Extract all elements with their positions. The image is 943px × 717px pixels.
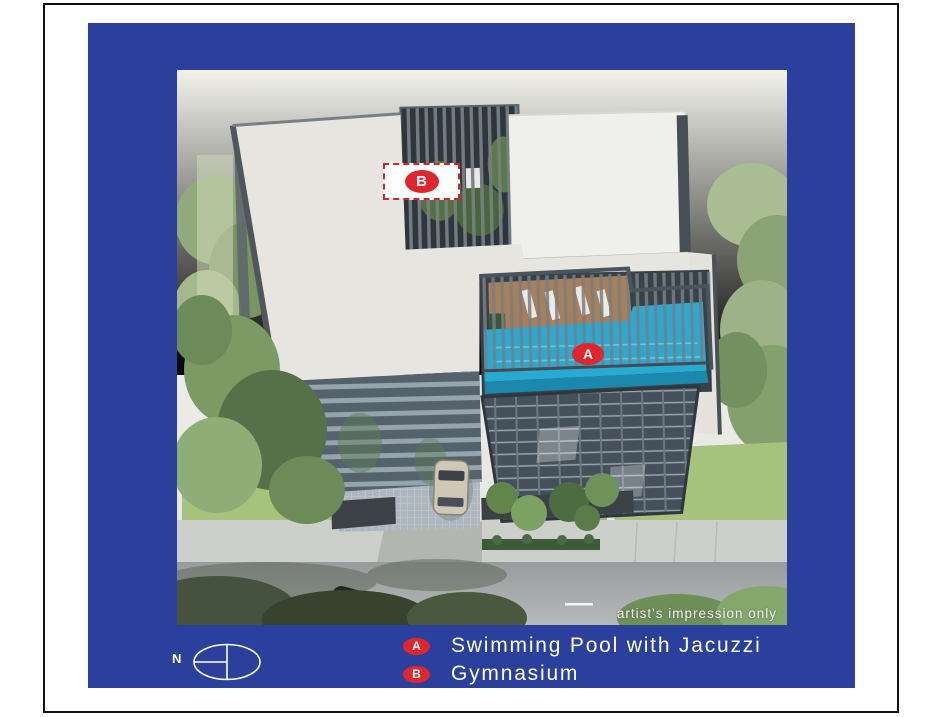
legend-badge-b: B (403, 666, 430, 683)
marker-b-badge: B (405, 170, 439, 193)
legend-badge-b-letter: B (412, 667, 421, 681)
legend-badge-a-letter: A (412, 639, 421, 653)
rendering-scene (177, 70, 787, 625)
legend-row-a: A Swimming Pool with Jacuzzi (403, 635, 762, 657)
legend: A Swimming Pool with Jacuzzi B Gymnasium (403, 635, 762, 685)
legend-label-a: Swimming Pool with Jacuzzi (451, 634, 762, 658)
compass-north-label: N (172, 651, 181, 666)
legend-label-b: Gymnasium (451, 662, 579, 686)
north-compass (190, 642, 264, 682)
marker-a-letter: A (583, 346, 593, 362)
watermark-text: artist's impression only (617, 606, 777, 621)
legend-badge-a: A (403, 638, 430, 655)
legend-row-b: B Gymnasium (403, 663, 762, 685)
brochure-page: B A artist's impression only N A Swimmin… (0, 0, 943, 717)
pool-deck-section (479, 267, 713, 397)
marker-a-badge: A (572, 343, 604, 365)
marker-b-callout: B (383, 163, 460, 200)
marker-b-letter: B (416, 174, 427, 189)
building-aerial-rendering: B A artist's impression only (177, 70, 787, 625)
penthouse-roof (509, 111, 691, 263)
